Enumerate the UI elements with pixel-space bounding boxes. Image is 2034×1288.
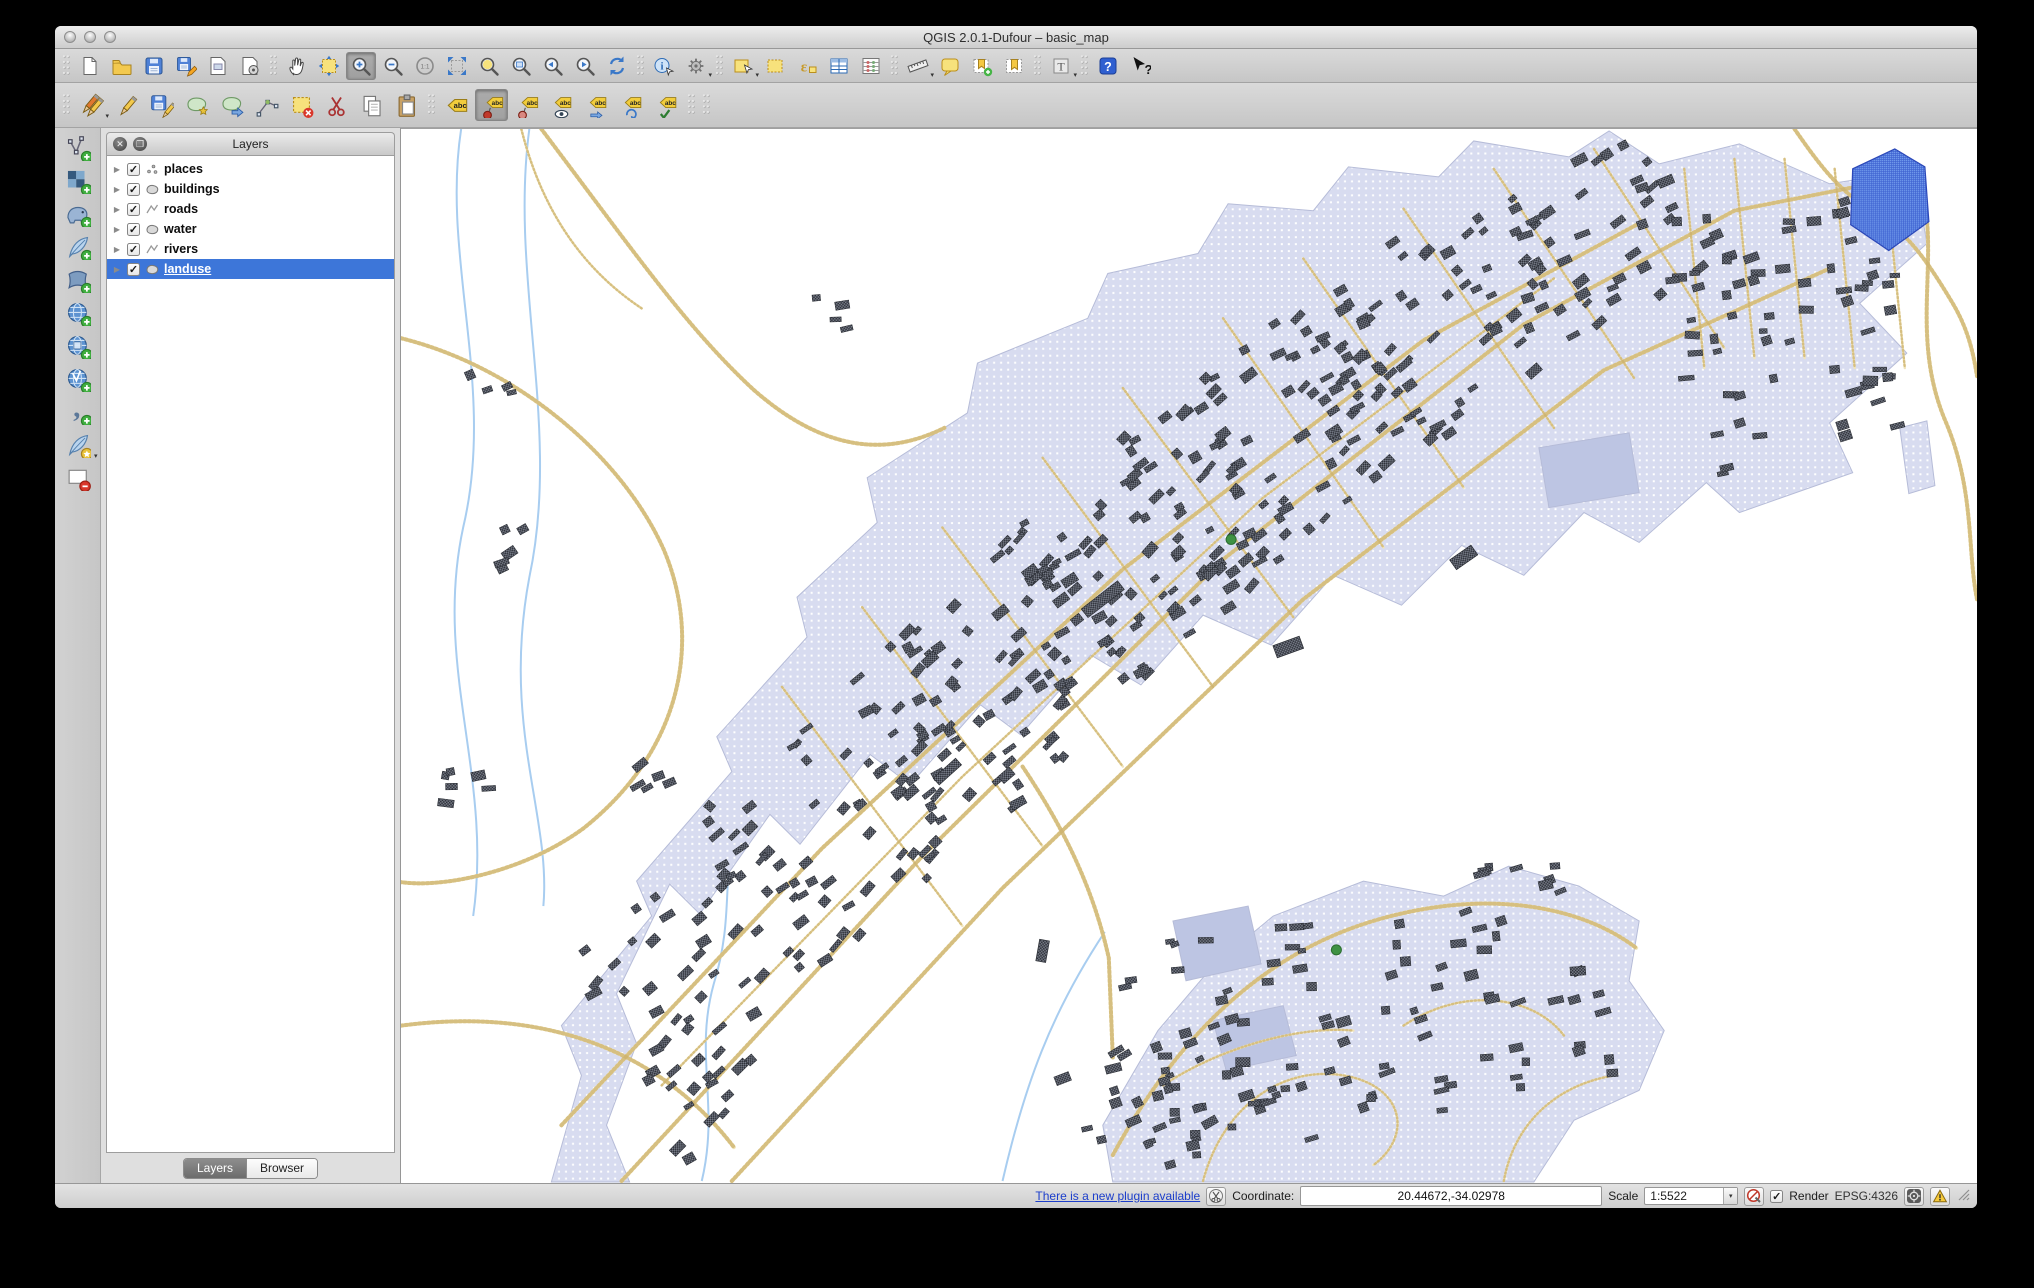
- delete-selected[interactable]: [285, 89, 318, 121]
- add-wms-layer[interactable]: [59, 296, 97, 329]
- title-bar[interactable]: QGIS 2.0.1-Dufour – basic_map: [55, 26, 1977, 49]
- zoom-out-icon: [382, 55, 404, 77]
- svg-text:i: i: [660, 60, 663, 72]
- select-rect-icon: [732, 55, 754, 77]
- svg-text:ε: ε: [801, 59, 808, 75]
- postgis-icon: [65, 201, 91, 227]
- doc-icon: [79, 55, 101, 77]
- layer-label: roads: [164, 202, 198, 216]
- vector-icon: [65, 135, 91, 161]
- measure-icon: [907, 55, 929, 77]
- zoom-button[interactable]: [104, 31, 116, 43]
- sb-msg-glyph: [1932, 1188, 1948, 1204]
- layer-labeling-options[interactable]: abc: [440, 89, 473, 121]
- coordinate-input[interactable]: 20.44672,-34.02978: [1300, 1186, 1602, 1206]
- bookmark-show-icon: [1003, 55, 1025, 77]
- zoom-to-selection[interactable]: [474, 52, 504, 80]
- qgis-window: QGIS 2.0.1-Dufour – basic_map 1:1 i ▾▾ε …: [55, 26, 1977, 1208]
- save-layer-edits[interactable]: [145, 89, 178, 121]
- zoom-out[interactable]: [378, 52, 408, 80]
- save-project[interactable]: [139, 52, 169, 80]
- svg-text:abc: abc: [665, 99, 676, 106]
- delimited-icon: ,: [65, 399, 91, 425]
- toolbar-grip: [62, 54, 71, 78]
- help-contents[interactable]: ?: [1093, 52, 1123, 80]
- new-project[interactable]: [75, 52, 105, 80]
- identify-features[interactable]: i: [649, 52, 679, 80]
- toolbar-grip: [427, 93, 436, 117]
- svg-text:?: ?: [1145, 62, 1152, 77]
- copy-features[interactable]: [355, 89, 388, 121]
- layer-checkbox[interactable]: ✓: [127, 263, 140, 276]
- expander-icon[interactable]: ▶: [112, 225, 122, 234]
- feat-move-icon: [219, 93, 244, 118]
- render-label: Render: [1789, 1189, 1828, 1203]
- pan-icon: [286, 55, 308, 77]
- pan-sel-icon: [318, 55, 340, 77]
- node-tool[interactable]: [250, 89, 283, 121]
- window-controls: [64, 31, 116, 43]
- open-attribute-table[interactable]: [824, 52, 854, 80]
- node-icon: [254, 93, 279, 118]
- resize-grip-icon: [1956, 1187, 1971, 1202]
- text-annotation[interactable]: T▾: [1046, 52, 1076, 80]
- raster-icon: [65, 168, 91, 194]
- chevron-down-icon: ▾: [1073, 71, 1077, 79]
- paste-icon: [394, 93, 419, 118]
- chevron-down-icon[interactable]: ▾: [1723, 1188, 1737, 1204]
- layer-polygon-icon: [145, 262, 159, 276]
- layer-checkbox[interactable]: ✓: [127, 223, 140, 236]
- layer-checkbox[interactable]: ✓: [127, 163, 140, 176]
- label-abc-icon: abc: [444, 93, 469, 118]
- zoom-next-icon: [574, 55, 596, 77]
- layer-row-places[interactable]: ▶✓places: [107, 159, 394, 179]
- layer-row-buildings[interactable]: ▶✓buildings: [107, 179, 394, 199]
- add-wfs-layer[interactable]: [59, 362, 97, 395]
- layer-row-rivers[interactable]: ▶✓rivers: [107, 239, 394, 259]
- add-raster-layer[interactable]: [59, 164, 97, 197]
- zoom-next[interactable]: [570, 52, 600, 80]
- del-sel-icon: [289, 93, 314, 118]
- field-calculator[interactable]: [856, 52, 886, 80]
- crs-status-label: EPSG:4326: [1835, 1189, 1898, 1203]
- gear-icon: [685, 55, 707, 77]
- window-title: QGIS 2.0.1-Dufour – basic_map: [55, 30, 1977, 45]
- map-tips[interactable]: [935, 52, 965, 80]
- layer-label: water: [164, 222, 197, 236]
- add-delimited-text-layer[interactable]: ,: [59, 395, 97, 428]
- chevron-down-icon: ▾: [105, 112, 109, 120]
- layer-polygon-icon: [145, 182, 159, 196]
- measure-line[interactable]: ▾: [903, 52, 933, 80]
- toolbar-grip: [1080, 54, 1089, 78]
- label-eye-icon: abc: [549, 93, 574, 118]
- zoom-to-layer[interactable]: [506, 52, 536, 80]
- select-by-expression[interactable]: ε: [792, 52, 822, 80]
- toolbar-grip: [269, 54, 278, 78]
- layer-row-water[interactable]: ▶✓water: [107, 219, 394, 239]
- pan-to-selection[interactable]: [314, 52, 344, 80]
- layer-checkbox[interactable]: ✓: [127, 203, 140, 216]
- maptips-icon: [939, 55, 961, 77]
- log-messages-button[interactable]: [1930, 1187, 1950, 1206]
- zoom-last-icon: [542, 55, 564, 77]
- expression-icon: ε: [796, 55, 818, 77]
- layer-checkbox[interactable]: ✓: [127, 243, 140, 256]
- zoom-11-icon: 1:1: [414, 55, 436, 77]
- layers-panel-title: Layers: [107, 137, 394, 151]
- bookmark-new-icon: [971, 55, 993, 77]
- scale-combo[interactable]: 1:5522 ▾: [1644, 1187, 1738, 1205]
- new-bookmark[interactable]: [967, 52, 997, 80]
- refresh-icon: [606, 55, 628, 77]
- layers-panel-header[interactable]: ✕ ❐ Layers: [106, 132, 395, 155]
- rotate-label[interactable]: abc: [615, 89, 648, 121]
- layer-point-icon: [145, 162, 159, 176]
- toolbar-main: 1:1 i ▾▾ε ▾T▾??: [55, 49, 1977, 83]
- layer-list: ▶✓places▶✓buildings▶✓roads▶✓water▶✓river…: [106, 155, 395, 1153]
- copy-icon: [359, 93, 384, 118]
- edits-current-icon: [79, 93, 104, 118]
- composer-icon: [207, 55, 229, 77]
- save-project-as[interactable]: [171, 52, 201, 80]
- zoom-in-icon: [350, 55, 372, 77]
- toolbar-grip: [890, 54, 899, 78]
- toggle-editing[interactable]: [110, 89, 143, 121]
- edit-toggle-icon: [114, 93, 139, 118]
- float-panel-button[interactable]: ❐: [133, 137, 147, 151]
- add-spatialite-layer[interactable]: [59, 230, 97, 263]
- shp-new-icon: [65, 465, 91, 491]
- add-feature[interactable]: [180, 89, 213, 121]
- layer-checkbox[interactable]: ✓: [127, 183, 140, 196]
- deselect-features[interactable]: [760, 52, 790, 80]
- layer-polygon-icon: [145, 222, 159, 236]
- layer-line-icon: [145, 242, 159, 256]
- open-project[interactable]: [107, 52, 137, 80]
- add-wcs-layer[interactable]: [59, 329, 97, 362]
- render-checkbox[interactable]: ✓: [1770, 1190, 1783, 1203]
- expander-icon[interactable]: ▶: [112, 265, 122, 274]
- svg-text:,: ,: [73, 399, 80, 424]
- help-icon: ?: [1097, 55, 1119, 77]
- expander-icon[interactable]: ▶: [112, 165, 122, 174]
- cut-icon: [324, 93, 349, 118]
- change-label-properties[interactable]: abc: [650, 89, 683, 121]
- zoom-full[interactable]: [442, 52, 472, 80]
- svg-text:T: T: [1057, 59, 1065, 73]
- move-feature[interactable]: [215, 89, 248, 121]
- wfs-icon: [65, 366, 91, 392]
- stats-icon: [860, 55, 882, 77]
- sb-crs-glyph: [1906, 1188, 1922, 1204]
- svg-text:?: ?: [1104, 60, 1112, 74]
- layer-label: rivers: [164, 242, 198, 256]
- cut-features[interactable]: [320, 89, 353, 121]
- chevron-down-icon: ▾: [755, 71, 759, 79]
- label-props-icon: abc: [654, 93, 679, 118]
- new-spatialite-layer[interactable]: ▾: [59, 428, 97, 461]
- svg-text:abc: abc: [595, 99, 606, 106]
- panel-tab-browser[interactable]: Browser: [246, 1159, 317, 1178]
- chevron-down-icon: ▾: [708, 71, 712, 79]
- toolbar-grip: [62, 93, 71, 117]
- crs-status-button[interactable]: [1904, 1187, 1924, 1206]
- composer-manager[interactable]: [235, 52, 265, 80]
- expander-icon[interactable]: ▶: [112, 185, 122, 194]
- sl-new-icon: [65, 432, 91, 458]
- chevron-down-icon: ▾: [94, 452, 98, 460]
- close-panel-button[interactable]: ✕: [113, 137, 127, 151]
- wcs-icon: [65, 333, 91, 359]
- svg-text:abc: abc: [527, 99, 538, 106]
- add-mssql-layer[interactable]: [59, 263, 97, 296]
- add-postgis-layer[interactable]: [59, 197, 97, 230]
- label-move-icon: abc: [584, 93, 609, 118]
- new-print-composer[interactable]: [203, 52, 233, 80]
- label-pin-icon: abc: [479, 93, 504, 118]
- spatialite-icon: [65, 234, 91, 260]
- label-pin2-icon: abc: [514, 93, 539, 118]
- layer-label: landuse: [164, 262, 211, 276]
- run-feature-action[interactable]: ▾: [681, 52, 711, 80]
- wms-icon: [65, 300, 91, 326]
- map-render: [401, 129, 1977, 1183]
- move-label[interactable]: abc: [580, 89, 613, 121]
- toolbar-grip: [702, 93, 711, 117]
- toolbar-digitizing-labeling: ▾ abc abc abc abc abc abc abc: [55, 83, 1977, 128]
- label-rotate-icon: abc: [619, 93, 644, 118]
- svg-text:abc: abc: [492, 99, 503, 106]
- layer-row-landuse[interactable]: ▶✓landuse: [107, 259, 394, 279]
- new-plugin-link[interactable]: There is a new plugin available: [1035, 1189, 1200, 1203]
- map-canvas[interactable]: [401, 128, 1977, 1183]
- expander-icon[interactable]: ▶: [112, 245, 122, 254]
- svg-text:abc: abc: [630, 99, 641, 106]
- chevron-down-icon: ▾: [930, 71, 934, 79]
- toolbar-grip: [1033, 54, 1042, 78]
- stop-render-button[interactable]: [1744, 1187, 1764, 1206]
- minimize-button[interactable]: [84, 31, 96, 43]
- current-edits[interactable]: ▾: [75, 89, 108, 121]
- edits-save-icon: [149, 93, 174, 118]
- toolbar-grip: [636, 54, 645, 78]
- manage-layers-toolbar: , ▾: [55, 128, 101, 1183]
- panel-tab-strip: LayersBrowser: [101, 1153, 400, 1183]
- select-features[interactable]: ▾: [728, 52, 758, 80]
- annotation-icon: T: [1050, 55, 1072, 77]
- feat-add-icon: [184, 93, 209, 118]
- whats-this[interactable]: ?: [1125, 52, 1155, 80]
- identify-icon: i: [653, 55, 675, 77]
- save-icon: [143, 55, 165, 77]
- coordinate-label: Coordinate:: [1232, 1189, 1294, 1203]
- scale-label: Scale: [1608, 1189, 1638, 1203]
- composer-mgr-icon: [239, 55, 261, 77]
- zoom-full-icon: [446, 55, 468, 77]
- plugin-icon[interactable]: [1206, 1187, 1226, 1206]
- show-bookmarks[interactable]: [999, 52, 1029, 80]
- svg-text:abc: abc: [560, 99, 571, 106]
- folder-icon: [111, 55, 133, 77]
- mssql-icon: [65, 267, 91, 293]
- toolbar-grip: [687, 93, 696, 117]
- deselect-icon: [764, 55, 786, 77]
- layers-panel: ✕ ❐ Layers ▶✓places▶✓buildings▶✓roads▶✓w…: [101, 128, 401, 1183]
- scale-value: 1:5522: [1650, 1189, 1687, 1203]
- pan-map[interactable]: [282, 52, 312, 80]
- layer-line-icon: [145, 202, 159, 216]
- zoom-last[interactable]: [538, 52, 568, 80]
- refresh-map[interactable]: [602, 52, 632, 80]
- sb-stop-glyph: [1746, 1188, 1762, 1204]
- paste-features[interactable]: [390, 89, 423, 121]
- zoom-native[interactable]: 1:1: [410, 52, 440, 80]
- add-vector-layer[interactable]: [59, 131, 97, 164]
- close-button[interactable]: [64, 31, 76, 43]
- resize-grip[interactable]: [1956, 1187, 1971, 1205]
- attr-table-icon: [828, 55, 850, 77]
- svg-text:abc: abc: [454, 101, 467, 110]
- svg-text:1:1: 1:1: [420, 63, 429, 70]
- layer-label: buildings: [164, 182, 220, 196]
- whatsthis-icon: ?: [1129, 55, 1151, 77]
- status-bar: There is a new plugin available Coordina…: [55, 1183, 1977, 1208]
- layer-row-roads[interactable]: ▶✓roads: [107, 199, 394, 219]
- save-as-icon: [175, 55, 197, 77]
- expander-icon[interactable]: ▶: [112, 205, 122, 214]
- pin-unpin-labels[interactable]: abc: [475, 89, 508, 121]
- show-hide-labels[interactable]: abc: [545, 89, 578, 121]
- toolbar-grip: [715, 54, 724, 78]
- zoom-layer-icon: [510, 55, 532, 77]
- sb-plugin-glyph: [1208, 1188, 1224, 1204]
- highlight-pinned-labels[interactable]: abc: [510, 89, 543, 121]
- panel-tab-layers[interactable]: Layers: [184, 1159, 246, 1178]
- new-shapefile-layer[interactable]: [59, 461, 97, 494]
- zoom-sel-icon: [478, 55, 500, 77]
- zoom-in[interactable]: [346, 52, 376, 80]
- layer-label: places: [164, 162, 203, 176]
